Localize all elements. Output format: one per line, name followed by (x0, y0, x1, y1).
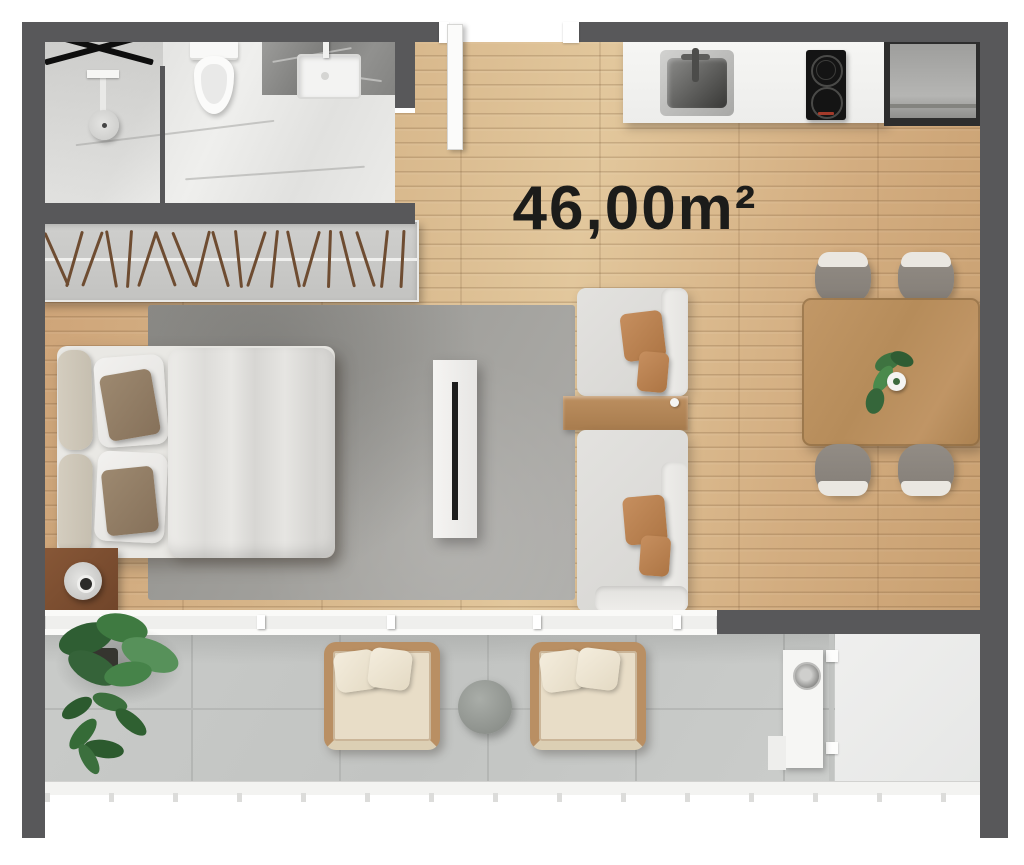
wall-right (980, 22, 1008, 838)
chair-backrest (901, 252, 951, 267)
kitchen-faucet (692, 48, 699, 82)
area-label: 46,00m² (488, 178, 782, 240)
shower-partition-wall (160, 66, 165, 205)
chair-cushion (367, 647, 414, 692)
wicker-armchair (530, 642, 646, 750)
chair-backrest (818, 252, 868, 267)
faucet-drain (321, 72, 329, 80)
wall-bathroom-right (395, 42, 415, 108)
dining-chair (898, 444, 954, 496)
wardrobe-closet (38, 220, 419, 302)
wall-bathroom-bottom (45, 203, 415, 224)
wall-top-right (565, 22, 1008, 42)
partition-post (826, 650, 838, 662)
duvet (168, 348, 335, 558)
dining-chair (815, 252, 871, 304)
closet-rail (40, 258, 417, 261)
door-handle-icon (257, 615, 265, 629)
utility-step (768, 736, 786, 770)
entry-door-leaf (447, 24, 463, 150)
wicker-armchair (324, 642, 440, 750)
tv-screen-icon (452, 382, 458, 520)
washer-drum-icon (793, 662, 821, 690)
shower-valve (87, 70, 119, 78)
door-handle-icon (387, 615, 395, 629)
railing-posts (45, 793, 980, 802)
door-handle-icon (533, 615, 541, 629)
entry-door-jamb (563, 22, 579, 43)
wall-top-left (22, 22, 445, 42)
sofa-pillow (639, 535, 672, 577)
dining-chair (898, 252, 954, 304)
accent-pillow (99, 368, 162, 442)
accent-pillow (101, 465, 160, 536)
cooktop-brand-mark (818, 112, 834, 115)
sofa-pillow (636, 351, 669, 393)
plant-pot-center (893, 378, 900, 385)
cup-icon (670, 398, 679, 407)
door-handle-icon (673, 615, 681, 629)
chair-cushion (575, 647, 622, 692)
refrigerator-door-line (890, 104, 976, 108)
burner-ring (816, 60, 836, 80)
marble-vein (185, 166, 365, 181)
partition-post (826, 742, 838, 754)
bathroom-sink-icon (297, 54, 361, 99)
headboard-cushion (57, 454, 93, 555)
wall-balcony-divider (715, 610, 980, 634)
floorplan-canvas: 46,00m² (0, 0, 1024, 865)
chair-backrest (901, 481, 951, 496)
chair-backrest (818, 481, 868, 496)
wall-left (22, 22, 45, 838)
table-lamp-center (77, 575, 95, 593)
sofa-armrest (595, 586, 688, 612)
utility-area-floor (835, 632, 980, 782)
headboard-cushion (57, 350, 93, 451)
dining-chair (815, 444, 871, 496)
round-side-table (458, 680, 512, 734)
shower-head-center (102, 123, 107, 128)
